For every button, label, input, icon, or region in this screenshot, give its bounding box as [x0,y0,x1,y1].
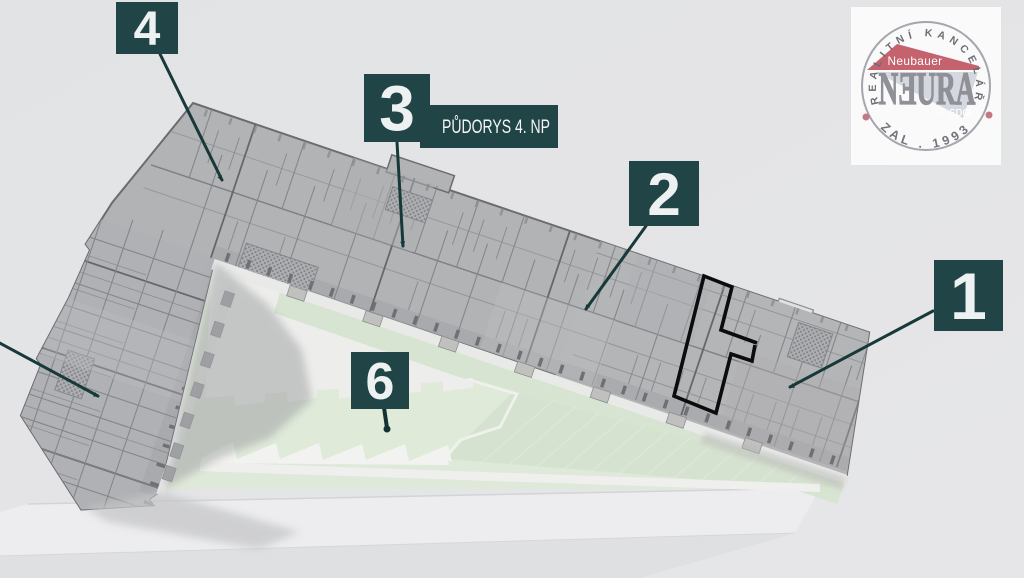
svg-text:3: 3 [379,73,415,145]
svg-text:6: 6 [366,353,395,411]
svg-text:Neubauer: Neubauer [887,54,942,68]
svg-text:+ spol.: + spol. [938,105,975,119]
svg-text:PŮDORYS 4. NP: PŮDORYS 4. NP [442,116,550,138]
svg-text:4: 4 [134,3,161,56]
svg-text:1: 1 [950,259,987,333]
svg-text:2: 2 [647,161,680,228]
